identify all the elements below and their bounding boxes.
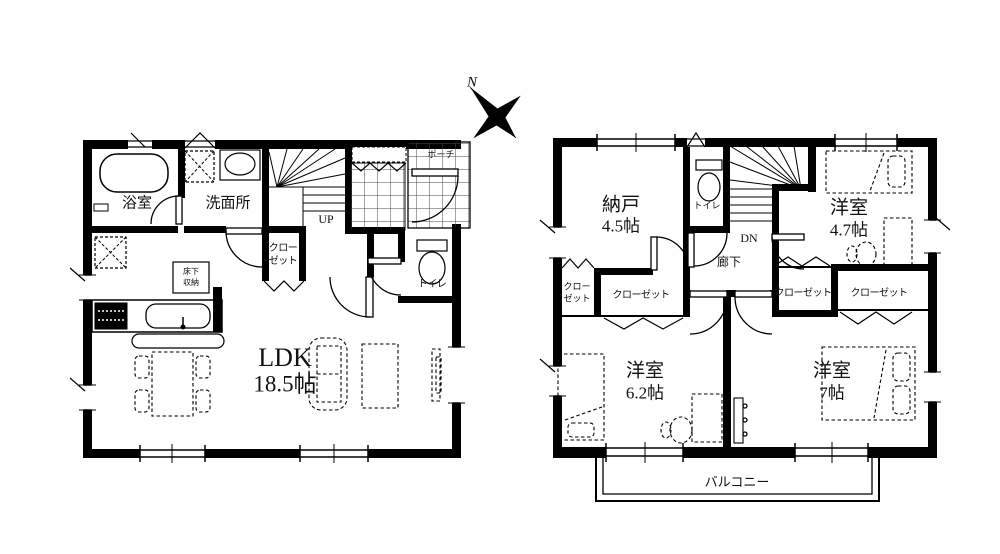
floorplan-drawing xyxy=(0,0,1000,554)
floor2-fixtures xyxy=(696,160,722,201)
label-ldk-name: LDK xyxy=(258,345,311,371)
label-underfloor-line1: 床下 xyxy=(183,268,199,276)
floor2-stairs xyxy=(730,146,801,221)
label-room-sw-size: 6.2帖 xyxy=(626,385,664,402)
label-storage-size: 4.5帖 xyxy=(602,218,640,235)
label-closet-small-line1: クロー xyxy=(563,283,590,292)
label-f1-closet-line2: ゼット xyxy=(269,257,298,267)
label-balcony: バルコニー xyxy=(705,476,770,489)
label-porch: ポーチ xyxy=(427,151,454,160)
label-room-ne-name: 洋室 xyxy=(830,199,868,218)
label-closet-se: クローゼット xyxy=(851,289,908,299)
floorplan-canvas: N 浴室 洗面所 UP クロー ゼット 床下 収納 トイレ LDK 18.5帖 … xyxy=(0,0,1000,554)
label-closet-ne: クローゼット xyxy=(775,289,832,299)
label-closet-center: クローゼット xyxy=(613,291,670,301)
label-f1-closet-line1: クロー xyxy=(269,244,298,254)
label-hallway: 廊下 xyxy=(717,256,741,268)
compass-north-label: N xyxy=(467,76,477,91)
label-washroom: 洗面所 xyxy=(205,197,250,212)
label-stairs-up: UP xyxy=(318,213,333,225)
label-stairs-down: DN xyxy=(740,232,757,244)
label-storage-name: 納戸 xyxy=(602,196,640,215)
label-f1-toilet: トイレ xyxy=(418,280,447,290)
label-room-ne-size: 4.7帖 xyxy=(830,222,868,239)
label-underfloor-line2: 収納 xyxy=(183,279,199,287)
label-closet-small-line2: ゼット xyxy=(563,295,590,304)
label-room-se-size: 7帖 xyxy=(819,385,845,402)
label-room-sw-name: 洋室 xyxy=(626,362,664,381)
label-bath: 浴室 xyxy=(122,197,152,212)
label-ldk-size: 18.5帖 xyxy=(253,373,316,396)
label-f2-toilet: トイレ xyxy=(693,202,720,211)
label-room-se-name: 洋室 xyxy=(813,362,851,381)
